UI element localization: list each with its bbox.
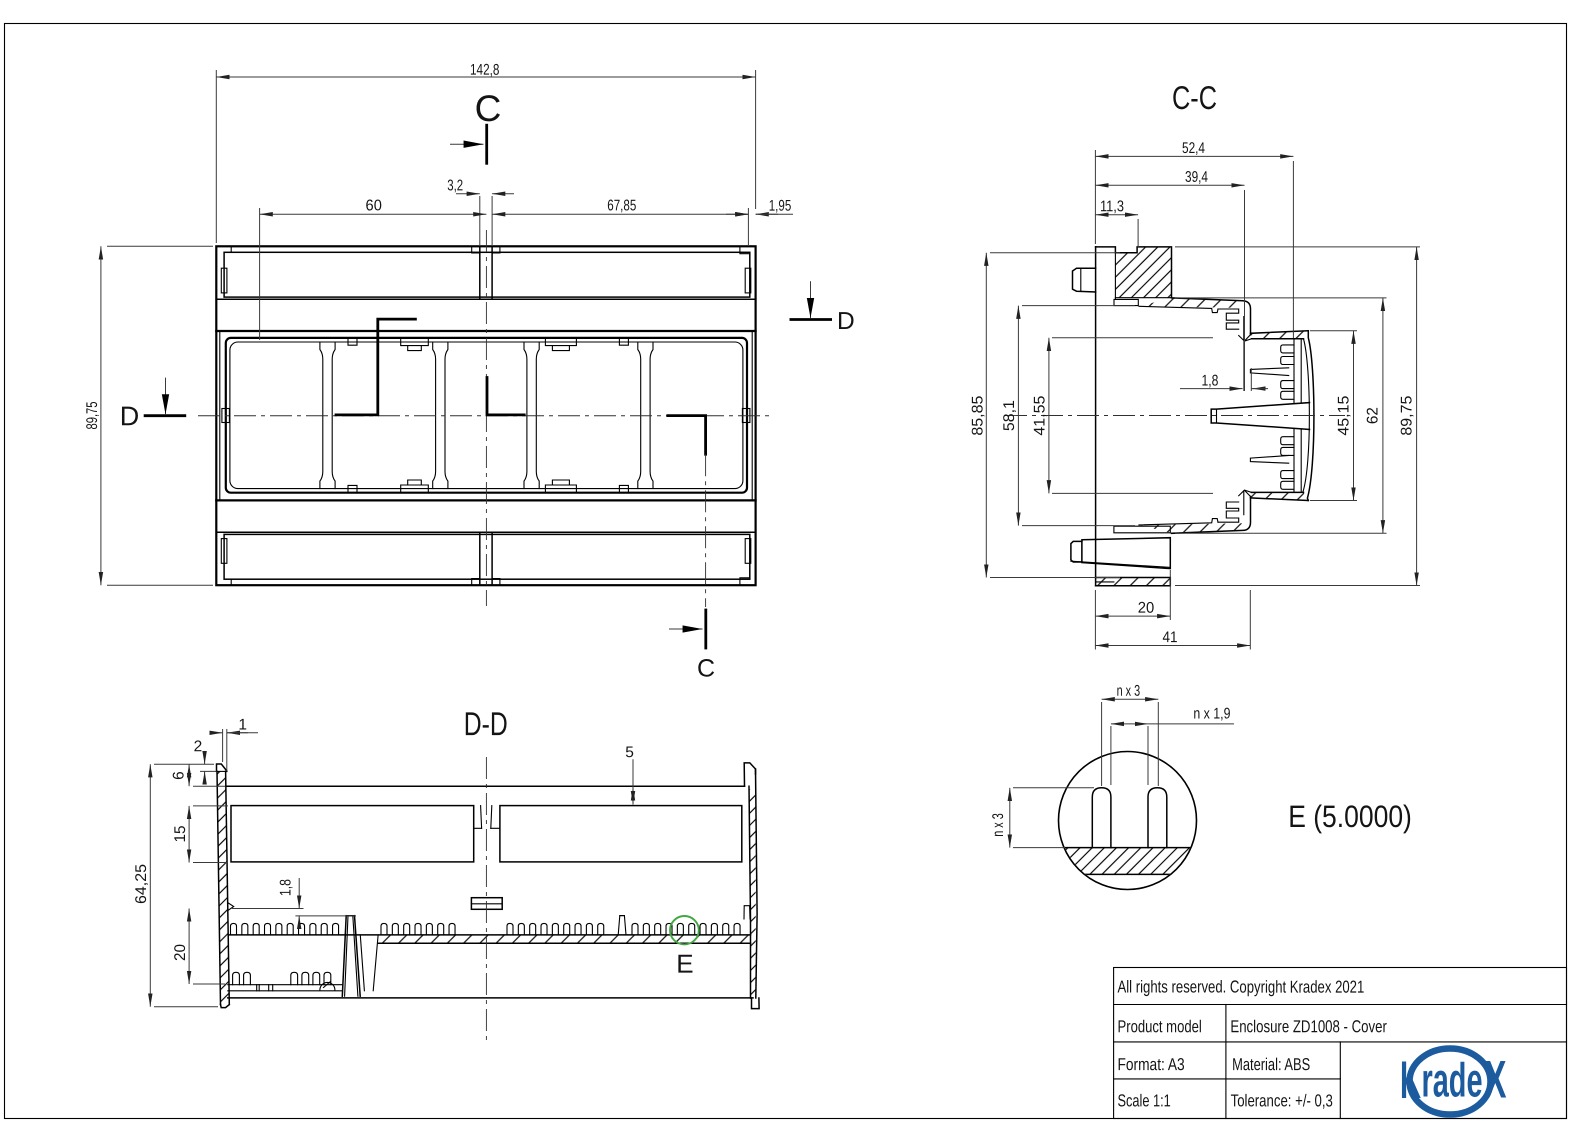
svg-text:Enclosure ZD1008 - Cover: Enclosure ZD1008 - Cover [1230,1016,1387,1036]
svg-text:K: K [1400,1051,1421,1110]
svg-text:3,2: 3,2 [447,177,463,194]
svg-text:All rights reserved. Copyright: All rights reserved. Copyright Kradex 20… [1117,977,1364,997]
svg-text:1,8: 1,8 [1201,372,1218,389]
svg-text:20: 20 [1138,600,1155,617]
svg-text:2: 2 [194,738,203,755]
svg-text:64,25: 64,25 [133,864,150,904]
svg-text:67,85: 67,85 [607,197,636,214]
svg-text:85,85: 85,85 [969,396,986,436]
svg-text:41,55: 41,55 [1032,396,1049,436]
svg-text:n x 3: n x 3 [1117,683,1141,700]
svg-text:60: 60 [366,197,383,214]
svg-text:E: E [676,949,693,979]
svg-text:D: D [837,308,855,335]
svg-text:1: 1 [238,716,247,733]
svg-text:Material: ABS: Material: ABS [1232,1054,1310,1074]
svg-text:45,15: 45,15 [1335,396,1352,436]
svg-text:Format: A3: Format: A3 [1117,1054,1184,1074]
svg-text:58,1: 58,1 [1001,400,1018,431]
svg-text:11,3: 11,3 [1100,198,1124,215]
svg-text:142,8: 142,8 [470,62,499,79]
svg-text:1,95: 1,95 [769,198,792,215]
svg-text:39,4: 39,4 [1185,169,1208,186]
svg-text:C: C [697,654,715,682]
svg-text:E (5.0000): E (5.0000) [1288,799,1412,834]
svg-text:15: 15 [172,826,189,843]
svg-text:41: 41 [1162,629,1177,646]
svg-text:6: 6 [170,771,187,780]
svg-text:D-D: D-D [464,705,508,742]
svg-text:1,8: 1,8 [278,879,295,896]
svg-text:X: X [1484,1051,1507,1110]
svg-text:52,4: 52,4 [1182,140,1205,157]
svg-text:C-C: C-C [1172,79,1217,116]
svg-text:C: C [475,88,502,129]
svg-text:89,75: 89,75 [1398,396,1415,436]
svg-text:n x 3: n x 3 [990,813,1007,837]
svg-text:5: 5 [625,744,634,761]
svg-text:Scale 1:1: Scale 1:1 [1117,1090,1170,1110]
svg-text:Product model: Product model [1117,1016,1201,1036]
svg-text:89,75: 89,75 [84,402,101,430]
svg-text:n x 1,9: n x 1,9 [1193,705,1230,722]
svg-text:Tolerance: +/- 0,3: Tolerance: +/- 0,3 [1231,1090,1333,1110]
svg-text:20: 20 [172,944,189,961]
svg-text:62: 62 [1365,407,1382,424]
svg-text:rade: rade [1421,1055,1482,1108]
svg-text:D: D [120,401,140,431]
